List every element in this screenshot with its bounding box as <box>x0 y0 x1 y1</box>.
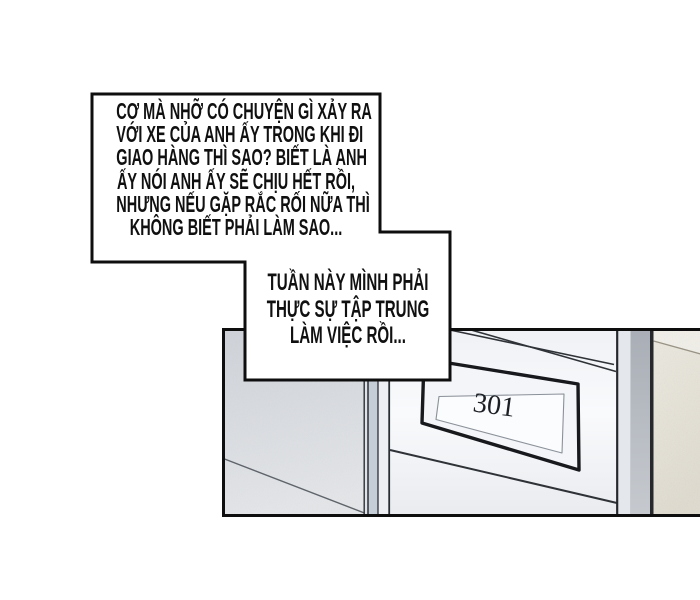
right-frame-dark-line <box>650 328 654 517</box>
speech-line: VỚI XE CỦA ANH ẤY TRONG KHI ĐI <box>116 123 355 146</box>
speech-line: GIAO HÀNG THÌ SAO? BIẾT LÀ ANH <box>116 146 355 169</box>
speech-line: LÀM VIỆC RỒI... <box>228 323 467 350</box>
speech-line: NHƯNG NẾU GẶP RẮC RỐI NỮA THÌ <box>116 193 355 216</box>
speech-line: KHÔNG BIẾT PHẢI LÀM SAO... <box>116 216 355 239</box>
speech-line: TUẦN NÀY MÌNH PHẢI <box>228 270 467 297</box>
comic-page: CƠ MÀ NHỠ CÓ CHUYỆN GÌ XẢY RA VỚI XE CỦA… <box>0 0 700 600</box>
right-frame-strip <box>631 328 650 517</box>
right-jamb <box>619 328 632 517</box>
speech-bubble-1-text: CƠ MÀ NHỠ CÓ CHUYỆN GÌ XẢY RA VỚI XE CỦA… <box>116 100 355 239</box>
speech-line: ẤY NÓI ANH ẤY SẼ CHỊU HẾT RỒI, <box>116 170 355 193</box>
speech-line: CƠ MÀ NHỠ CÓ CHUYỆN GÌ XẢY RA <box>116 100 355 123</box>
speech-bubble-2-text: TUẦN NÀY MÌNH PHẢI THỰC SỰ TẬP TRUNG LÀM… <box>228 270 467 350</box>
speech-line: THỰC SỰ TẬP TRUNG <box>228 297 467 324</box>
right-wall-texture <box>654 328 700 517</box>
